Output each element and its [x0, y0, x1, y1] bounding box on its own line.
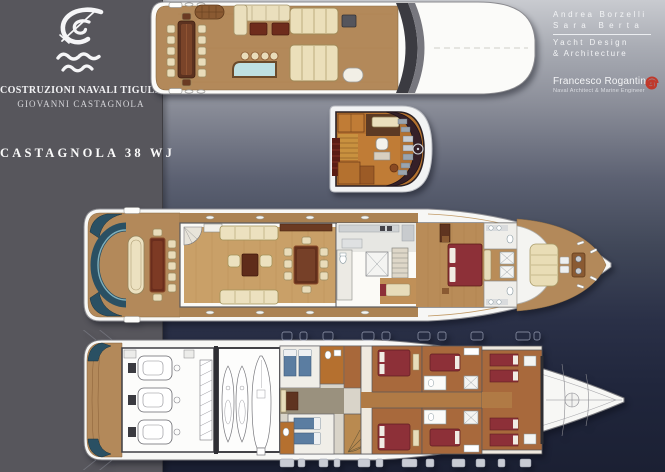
crew-quarters	[280, 346, 374, 454]
studio-line-1: Yacht Design	[553, 38, 655, 47]
yacht-model-name: CASTAGNOLA 38 WJ	[0, 146, 162, 161]
wheelhouse-detail-plan	[328, 104, 434, 194]
credits-divider	[553, 34, 651, 35]
poster-canvas: COSTRUZIONI NAVALI TIGULLIO GIOVANNI CAS…	[0, 0, 665, 472]
engine-room	[122, 346, 218, 454]
guest-cabins	[361, 346, 542, 454]
engineer-name: Francesco Rogantin	[553, 76, 655, 87]
designer-name-1: Andrea Borzelli	[553, 10, 655, 19]
credits-block: Andrea Borzelli Sara Berta Yacht Design …	[553, 10, 655, 94]
owner-cabin	[416, 223, 517, 307]
main-deck-foredeck	[517, 219, 606, 311]
tender-garage	[218, 348, 280, 455]
sun-deck-sofa	[234, 5, 290, 35]
designer-name-2: Sara Berta	[553, 21, 655, 30]
guest-cabin-aft-top	[372, 346, 422, 392]
guest-cabin-mid-bottom	[422, 408, 482, 454]
company-line2: GIOVANNI CASTAGNOLA	[0, 99, 162, 109]
engineer-title: Naval Architect & Marine Engineer	[553, 88, 655, 94]
porthole-row-top	[282, 332, 540, 340]
studio-line-2: & Architecture	[553, 49, 655, 58]
guest-cabin-aft-bottom	[372, 408, 422, 454]
sun-deck-dining-table	[178, 21, 195, 78]
lower-deck-plan	[76, 330, 632, 470]
main-deck-plan	[80, 206, 615, 324]
guest-cabin-mid-top	[422, 346, 482, 392]
swim-platform	[87, 343, 122, 457]
company-line1: COSTRUZIONI NAVALI TIGULLIO	[0, 85, 162, 96]
shipyard-logo-icon	[50, 5, 108, 83]
sun-deck-plan	[148, 0, 540, 96]
company-name-block: COSTRUZIONI NAVALI TIGULLIO GIOVANNI CAS…	[0, 85, 162, 109]
engineer-block: Francesco Rogantin Naval Architect & Mar…	[553, 76, 655, 94]
fwd-twin-cabins	[482, 350, 542, 450]
spiral-logo-icon	[643, 74, 661, 92]
sun-deck-spa	[195, 5, 224, 19]
